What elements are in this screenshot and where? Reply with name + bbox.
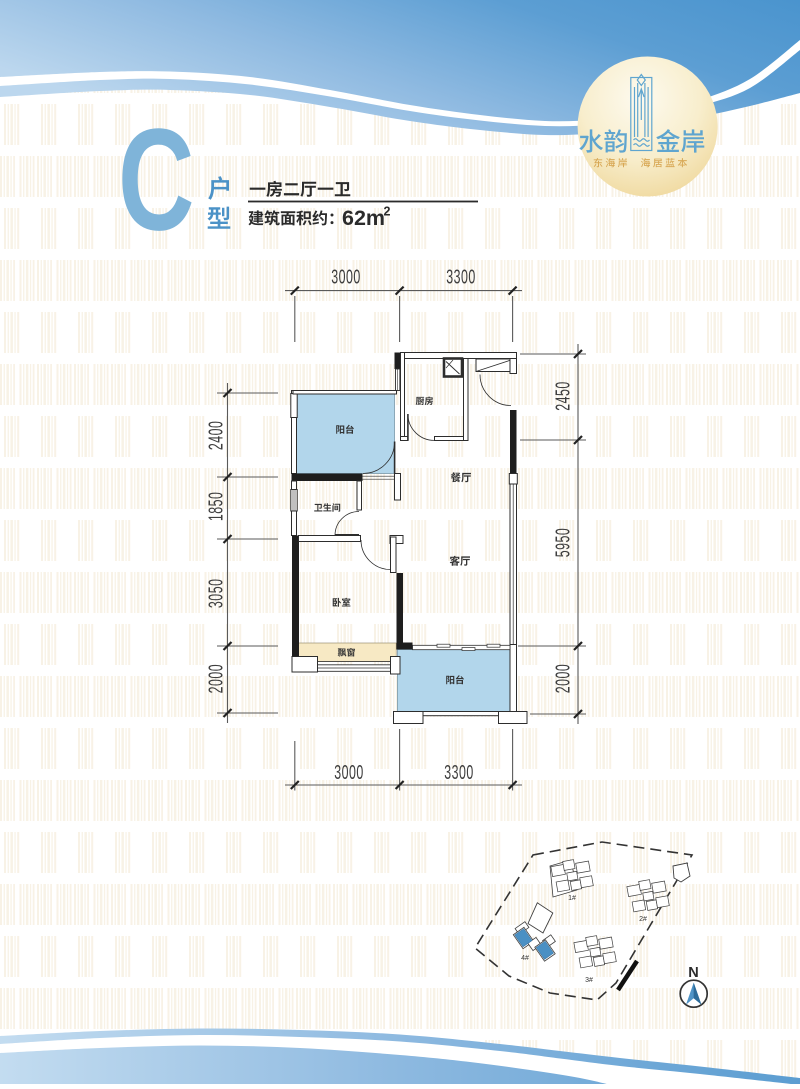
svg-text:2#: 2# xyxy=(639,916,647,923)
svg-text:3300: 3300 xyxy=(444,761,474,784)
svg-text:1#: 1# xyxy=(568,895,576,902)
svg-text:C: C xyxy=(118,98,194,260)
svg-text:2: 2 xyxy=(384,205,391,219)
svg-text:5950: 5950 xyxy=(551,528,574,558)
svg-text:3300: 3300 xyxy=(446,265,476,288)
svg-text:3000: 3000 xyxy=(334,761,364,784)
svg-text:3050: 3050 xyxy=(204,579,227,609)
svg-text:2450: 2450 xyxy=(551,381,574,411)
svg-text:N: N xyxy=(688,965,698,981)
svg-text:62m: 62m xyxy=(342,206,385,230)
svg-text:3#: 3# xyxy=(585,977,593,984)
svg-text:2000: 2000 xyxy=(551,664,574,694)
svg-text:2000: 2000 xyxy=(204,664,227,694)
svg-text:1850: 1850 xyxy=(204,492,227,522)
svg-text:4#: 4# xyxy=(521,955,529,962)
svg-text:3000: 3000 xyxy=(331,265,361,288)
svg-text:2400: 2400 xyxy=(204,421,227,451)
